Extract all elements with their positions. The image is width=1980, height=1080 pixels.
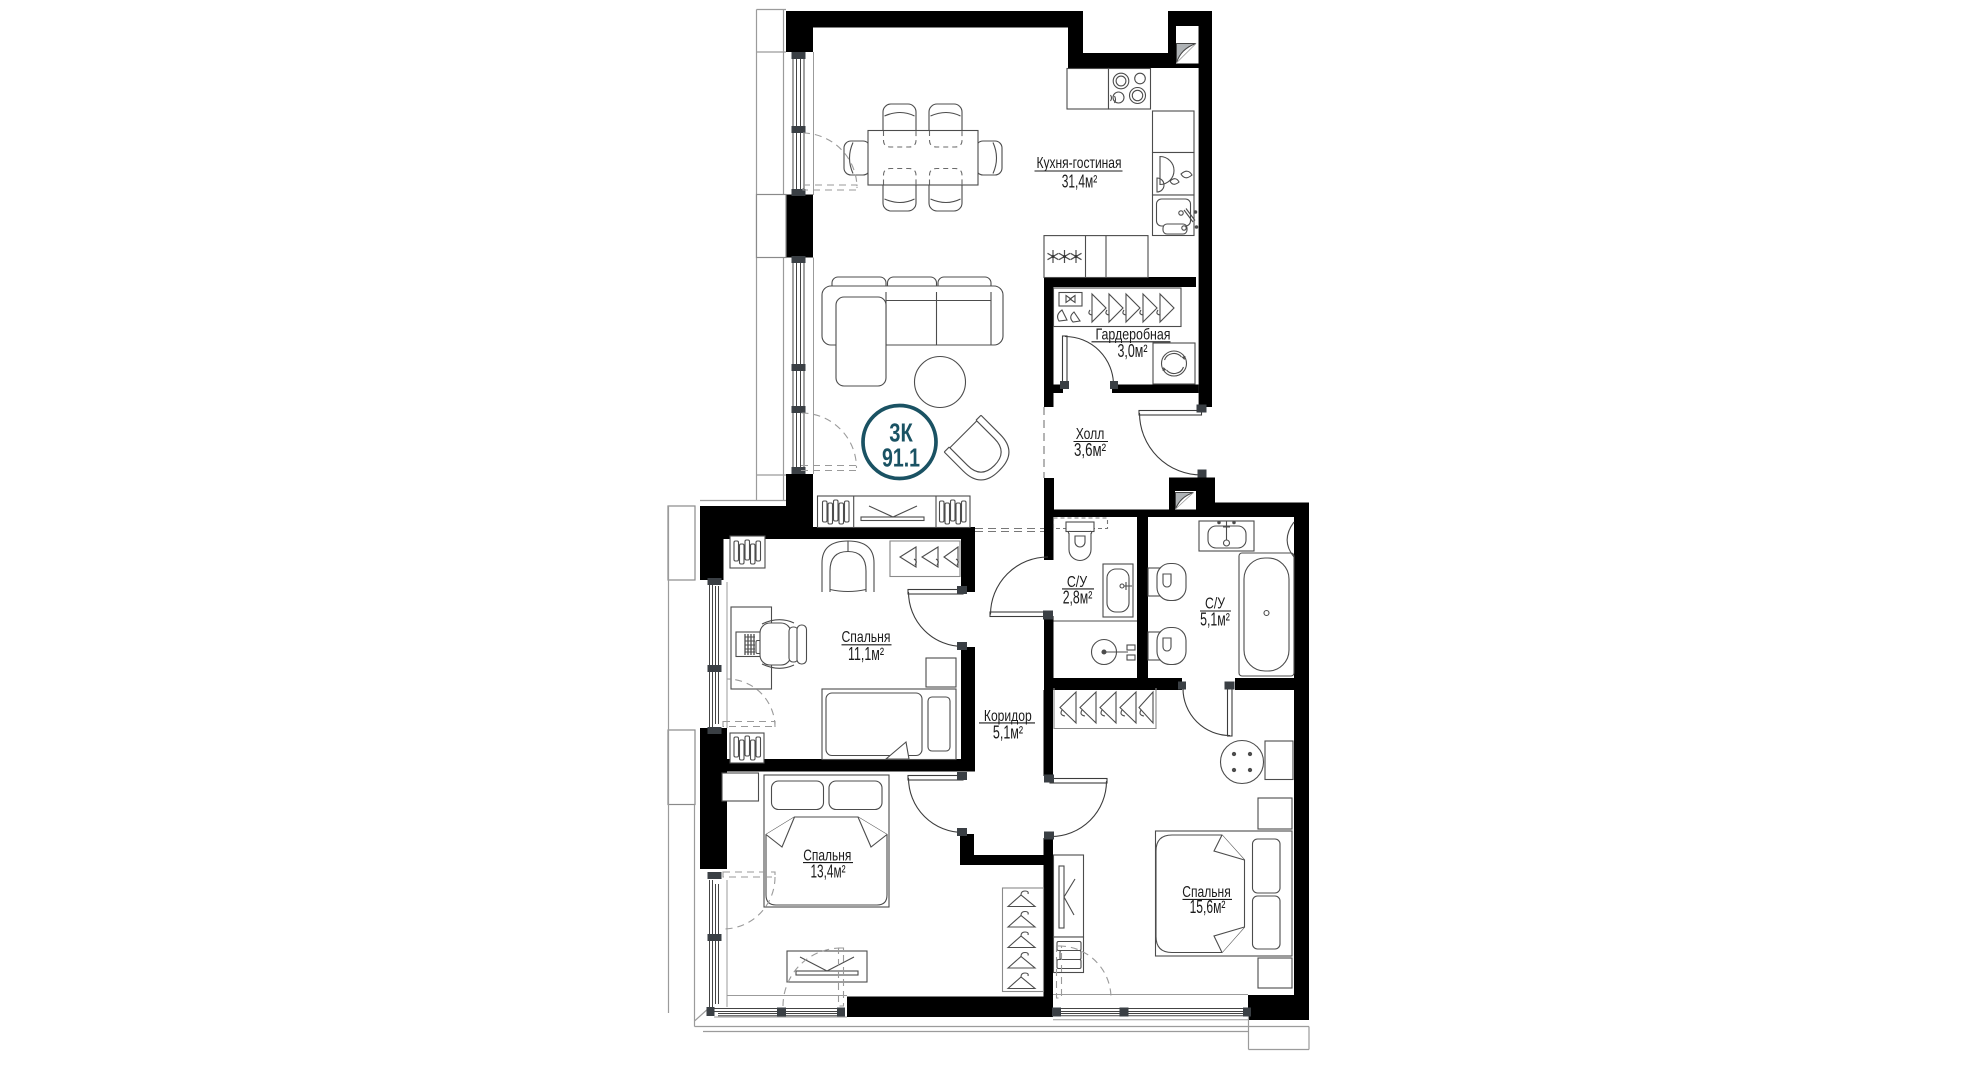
svg-text:31,4м²: 31,4м² [1062,172,1098,192]
svg-text:3,6м²: 3,6м² [1074,440,1106,460]
svg-text:3,0м²: 3,0м² [1118,341,1148,361]
svg-text:Кухня-гостиная: Кухня-гостиная [1037,155,1122,172]
svg-text:13,4м²: 13,4м² [811,862,846,882]
svg-text:5,1м²: 5,1м² [1200,609,1230,629]
svg-text:2,8м²: 2,8м² [1063,587,1093,607]
svg-text:5,1м²: 5,1м² [993,722,1023,742]
svg-text:11,1м²: 11,1м² [848,644,884,664]
svg-text:15,6м²: 15,6м² [1190,897,1226,917]
svg-text:91.1: 91.1 [882,443,920,473]
